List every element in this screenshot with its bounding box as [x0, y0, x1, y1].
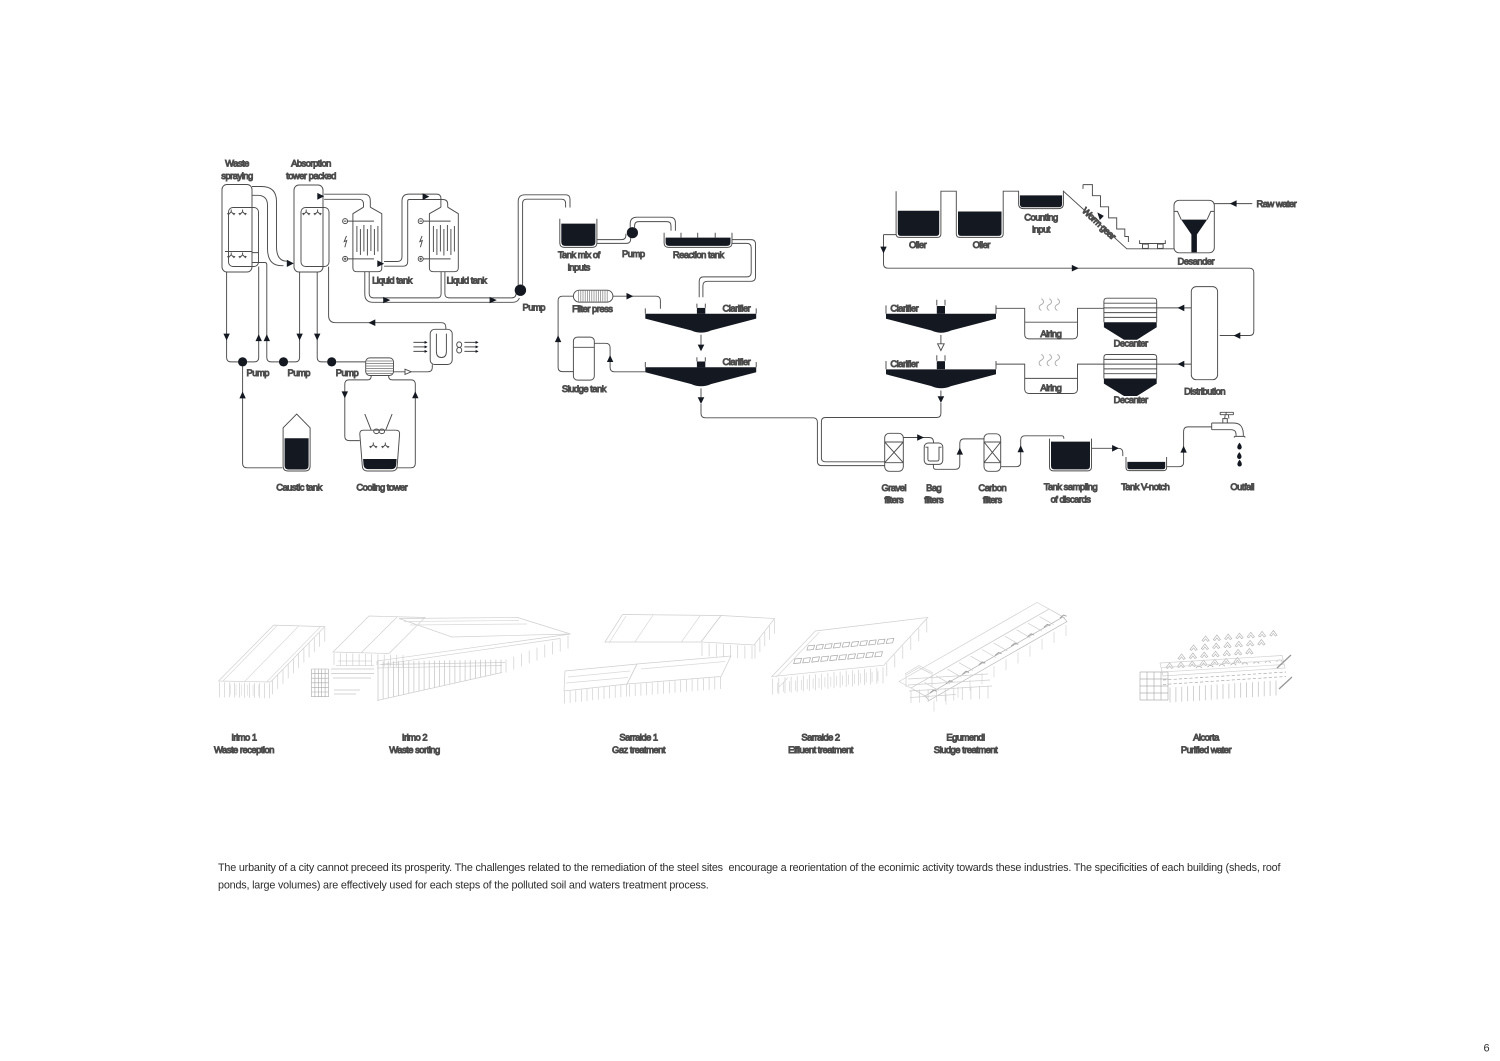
svg-text:Raw water: Raw water — [1257, 198, 1297, 209]
svg-text:Counting: Counting — [1024, 211, 1058, 222]
svg-text:spraying: spraying — [221, 170, 253, 181]
svg-text:Pump: Pump — [622, 248, 645, 259]
svg-text:Pump: Pump — [523, 301, 546, 312]
svg-text:Pump: Pump — [288, 367, 311, 378]
svg-text:6: 6 — [1483, 1043, 1489, 1055]
svg-text:inputs: inputs — [568, 261, 591, 272]
svg-text:Decanter: Decanter — [1114, 394, 1148, 405]
svg-text:Carbon: Carbon — [978, 482, 1006, 493]
svg-text:Tank V-notch: Tank V-notch — [1121, 481, 1169, 492]
svg-text:Caustic tank: Caustic tank — [276, 482, 322, 493]
svg-text:Irimo 1: Irimo 1 — [231, 732, 256, 743]
svg-text:Waste reception: Waste reception — [214, 744, 274, 755]
svg-text:Oiler: Oiler — [909, 239, 927, 250]
svg-text:Purified water: Purified water — [1181, 744, 1232, 755]
svg-text:Waste: Waste — [225, 158, 249, 169]
svg-text:tower packed: tower packed — [286, 170, 336, 181]
svg-text:Sarralde 2: Sarralde 2 — [801, 732, 840, 743]
svg-text:Gaz treatment: Gaz treatment — [612, 744, 666, 755]
svg-text:Tank sampling: Tank sampling — [1044, 481, 1098, 492]
svg-text:Liquid tank: Liquid tank — [447, 275, 488, 286]
svg-text:Tank mix of: Tank mix of — [558, 249, 601, 260]
svg-text:Alcorta: Alcorta — [1193, 732, 1220, 743]
svg-text:Desander: Desander — [1177, 255, 1214, 266]
svg-text:Cooling tower: Cooling tower — [356, 482, 407, 493]
svg-text:Filter press: Filter press — [572, 303, 613, 314]
svg-text:Effluent treatment: Effluent treatment — [788, 744, 854, 755]
svg-text:filters: filters — [884, 494, 904, 505]
svg-text:filters: filters — [983, 494, 1003, 505]
svg-text:Outfall: Outfall — [1230, 481, 1254, 492]
svg-text:Decanter: Decanter — [1114, 338, 1148, 349]
svg-text:Worm gear: Worm gear — [1080, 205, 1118, 242]
svg-text:Gravel: Gravel — [881, 482, 906, 493]
svg-text:Bag: Bag — [926, 482, 941, 493]
svg-text:Pump: Pump — [247, 367, 270, 378]
svg-text:Clarifier: Clarifier — [723, 356, 751, 367]
svg-text:Waste sorting: Waste sorting — [389, 744, 440, 755]
svg-text:Clarifier: Clarifier — [723, 303, 751, 314]
svg-text:Absorption: Absorption — [291, 158, 331, 169]
svg-text:Egumendi: Egumendi — [946, 732, 985, 743]
svg-text:Clarifier: Clarifier — [890, 303, 918, 314]
svg-text:input: input — [1032, 224, 1051, 235]
svg-text:Liquid tank: Liquid tank — [372, 275, 413, 286]
svg-text:Clarifier: Clarifier — [890, 358, 918, 369]
svg-text:of discards: of discards — [1051, 493, 1092, 504]
svg-text:The urbanity of a city cannot: The urbanity of a city cannot preceed it… — [218, 862, 1281, 874]
svg-text:Sludge treatment: Sludge treatment — [934, 744, 998, 755]
svg-text:Reaction tank: Reaction tank — [673, 249, 725, 260]
svg-text:Distribution: Distribution — [1184, 386, 1225, 397]
svg-text:Irimo 2: Irimo 2 — [402, 732, 427, 743]
svg-text:filters: filters — [924, 494, 944, 505]
svg-text:Sludge tank: Sludge tank — [562, 383, 607, 394]
svg-text:Pump: Pump — [336, 367, 359, 378]
svg-text:ponds, large volumes) are effe: ponds, large volumes) are effectively us… — [218, 879, 709, 891]
svg-text:Oiler: Oiler — [973, 239, 991, 250]
svg-text:Airing: Airing — [1040, 382, 1061, 393]
svg-text:Airing: Airing — [1040, 328, 1061, 339]
svg-text:Sarralde 1: Sarralde 1 — [619, 732, 658, 743]
